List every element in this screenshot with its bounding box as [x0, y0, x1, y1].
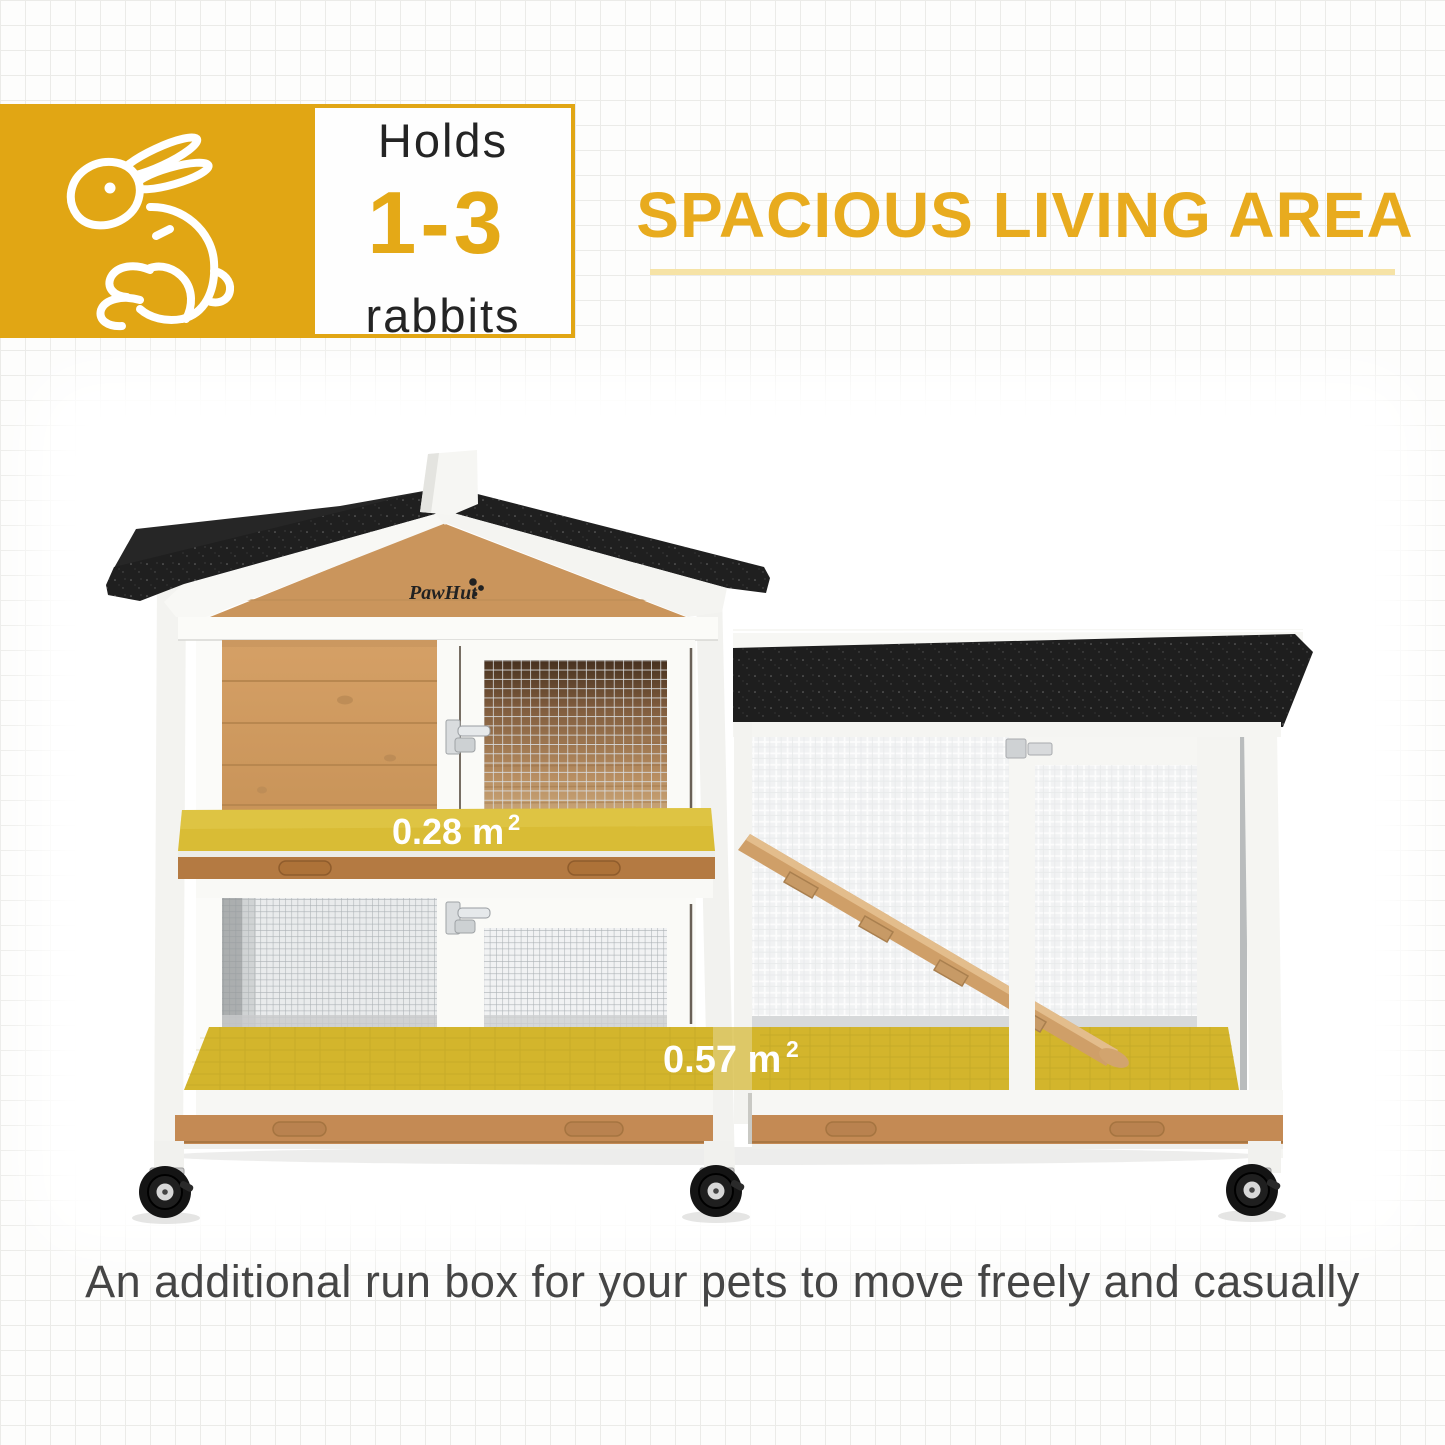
svg-text:2: 2 — [508, 810, 520, 835]
svg-text:PawHut: PawHut — [408, 582, 478, 604]
svg-text:0.28 m: 0.28 m — [392, 811, 504, 852]
svg-text:2: 2 — [786, 1036, 799, 1062]
svg-text:0.57 m: 0.57 m — [663, 1039, 781, 1081]
